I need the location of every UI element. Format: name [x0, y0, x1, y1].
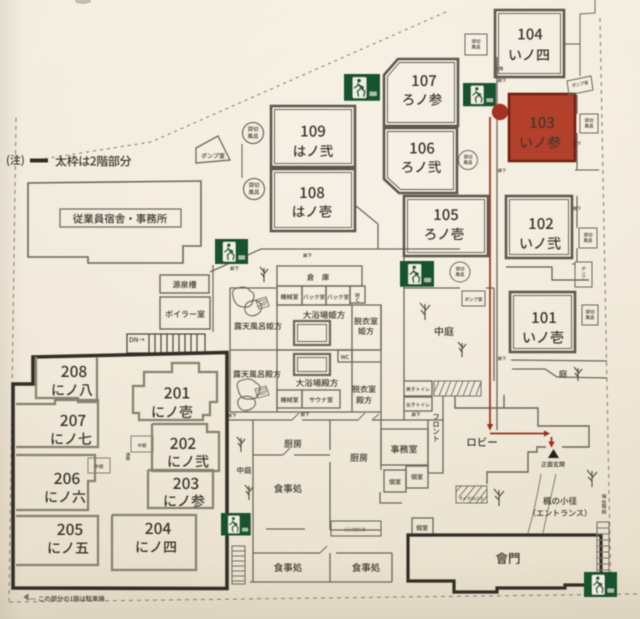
svg-text:WC: WC	[341, 353, 350, 361]
svg-text:廊下: 廊下	[498, 356, 506, 362]
svg-text:殿方: 殿方	[356, 395, 372, 406]
svg-text:にノ四: にノ四	[135, 537, 177, 557]
svg-text:はノ壱: はノ壱	[292, 201, 333, 221]
svg-text:機械室: 機械室	[280, 292, 298, 301]
svg-text:風呂: 風呂	[456, 272, 465, 278]
svg-text:中庭: 中庭	[434, 323, 454, 338]
svg-text:倉 庫: 倉 庫	[307, 272, 330, 283]
svg-text:フロント: フロント	[431, 412, 442, 442]
svg-text:風呂: 風呂	[586, 315, 595, 321]
svg-text:この部分の1階は駐車場: この部分の1階は駐車場	[38, 594, 105, 603]
svg-text:ろノ壱: ろノ壱	[424, 223, 465, 243]
svg-text:男子トイレ: 男子トイレ	[406, 386, 430, 393]
svg-text:露天風呂姫方: 露天風呂姫方	[234, 321, 282, 332]
svg-text:風呂: 風呂	[464, 160, 473, 166]
svg-text:場外階段: 場外階段	[601, 494, 608, 515]
svg-text:ろノ弐: ろノ弐	[401, 156, 442, 176]
svg-text:機械室: 機械室	[280, 395, 298, 404]
svg-text:風呂: 風呂	[248, 188, 259, 196]
svg-text:脱衣室: 脱衣室	[352, 384, 376, 395]
svg-text:マイクロバス: マイクロバス	[458, 496, 483, 502]
svg-text:バック室: バック室	[327, 293, 350, 301]
svg-text:會門: 會門	[495, 548, 520, 567]
svg-text:208: 208	[61, 360, 88, 382]
svg-text:廊下: 廊下	[573, 141, 581, 147]
svg-text:サウナ室: サウナ室	[309, 395, 333, 404]
svg-text:205: 205	[57, 518, 84, 540]
svg-text:大浴場姫方: 大浴場姫方	[303, 309, 346, 321]
svg-text:ポンプ室: ポンプ室	[465, 297, 483, 303]
svg-text:正面玄関: 正面玄関	[541, 460, 565, 469]
svg-text:にノ七: にノ七	[50, 429, 92, 449]
svg-text:太枠は2階部分: 太枠は2階部分	[55, 153, 131, 170]
svg-text:女子トイレ: 女子トイレ	[406, 402, 430, 409]
svg-text:廊下: 廊下	[498, 78, 506, 84]
svg-text:（エントランス）: （エントランス）	[528, 508, 592, 519]
svg-text:101: 101	[531, 307, 557, 328]
svg-text:事務室: 事務室	[390, 443, 417, 456]
svg-text:201: 201	[164, 382, 191, 404]
svg-text:いノ弐: いノ弐	[519, 234, 561, 254]
svg-text:中庭: 中庭	[138, 443, 147, 449]
svg-text:にノ弐: にノ弐	[167, 452, 209, 472]
svg-text:DN→: DN→	[129, 334, 145, 344]
svg-text:ボイラー室: ボイラー室	[165, 309, 205, 320]
svg-text:にノ壱: にノ壱	[151, 402, 193, 422]
svg-text:はノ弐: はノ弐	[293, 140, 334, 160]
svg-text:露天風呂殿方: 露天風呂殿方	[233, 369, 281, 380]
svg-text:104: 104	[517, 24, 543, 45]
svg-text:上階: 上階	[495, 66, 504, 72]
svg-text:いノ壱: いノ壱	[522, 328, 564, 348]
svg-text:105: 105	[433, 204, 459, 225]
svg-text:廊下: 廊下	[228, 413, 237, 419]
svg-text:いノ四: いノ四	[508, 45, 550, 65]
svg-text:中庭: 中庭	[95, 464, 104, 470]
svg-text:風呂: 風呂	[472, 45, 481, 51]
svg-text:個室: 個室	[411, 472, 423, 481]
svg-text:個室: 個室	[389, 477, 401, 486]
svg-text:中庭: 中庭	[237, 465, 252, 476]
svg-text:庭: 庭	[559, 368, 568, 380]
svg-text:従業員宿舎・事務所: 従業員宿舎・事務所	[73, 212, 168, 227]
svg-text:103: 103	[529, 112, 555, 133]
svg-text:にノ参: にノ参	[163, 491, 205, 511]
svg-text:102: 102	[528, 213, 554, 234]
svg-text:通路: 通路	[125, 452, 131, 461]
svg-text:ロビー: ロビー	[466, 435, 498, 450]
svg-text:姫方: 姫方	[358, 326, 374, 337]
svg-text:個室: 個室	[416, 523, 428, 532]
svg-text:109: 109	[300, 121, 326, 142]
svg-text:206: 206	[54, 467, 81, 489]
svg-text:バック室: バック室	[303, 293, 326, 301]
svg-text:源泉槽: 源泉槽	[173, 280, 197, 291]
svg-text:廊下: 廊下	[230, 266, 239, 272]
svg-text:にノ八: にノ八	[51, 380, 93, 400]
svg-text:207: 207	[60, 409, 87, 431]
svg-text:食事処: 食事処	[274, 481, 303, 495]
svg-text:廊下: 廊下	[412, 412, 421, 418]
svg-text:厨房: 厨房	[350, 451, 368, 464]
svg-text:ろノ参: ろノ参	[402, 89, 443, 109]
svg-text:廊下: 廊下	[498, 168, 506, 174]
svg-text:ポンプ室: ポンプ室	[201, 151, 225, 160]
svg-text:厨房: 厨房	[284, 437, 302, 450]
svg-text:ポンプ: ポンプ	[581, 266, 587, 280]
svg-text:にノ五: にノ五	[47, 538, 89, 558]
svg-text:ﾄﾗﾝｸｶｳﾝﾀｰ: ﾄﾗﾝｸｶｳﾝﾀｰ	[344, 527, 368, 534]
svg-text:廊下: 廊下	[301, 412, 310, 418]
svg-text:風呂: 風呂	[247, 132, 258, 140]
svg-text:にノ六: にノ六	[44, 487, 86, 507]
svg-text:204: 204	[145, 517, 172, 539]
svg-text:C: C	[356, 296, 360, 304]
svg-text:楓の小径: 楓の小径	[543, 495, 578, 507]
svg-text:廊下: 廊下	[303, 253, 312, 259]
svg-text:廊下: 廊下	[573, 206, 581, 212]
svg-text:(注): (注)	[6, 152, 25, 168]
svg-text:風呂: 風呂	[585, 124, 594, 130]
svg-text:大浴場殿方: 大浴場殿方	[296, 377, 339, 389]
svg-text:食事処: 食事処	[274, 560, 303, 574]
svg-text:風呂: 風呂	[584, 238, 593, 244]
svg-text:いノ参: いノ参	[519, 133, 561, 153]
svg-text:食事処: 食事処	[352, 560, 381, 574]
